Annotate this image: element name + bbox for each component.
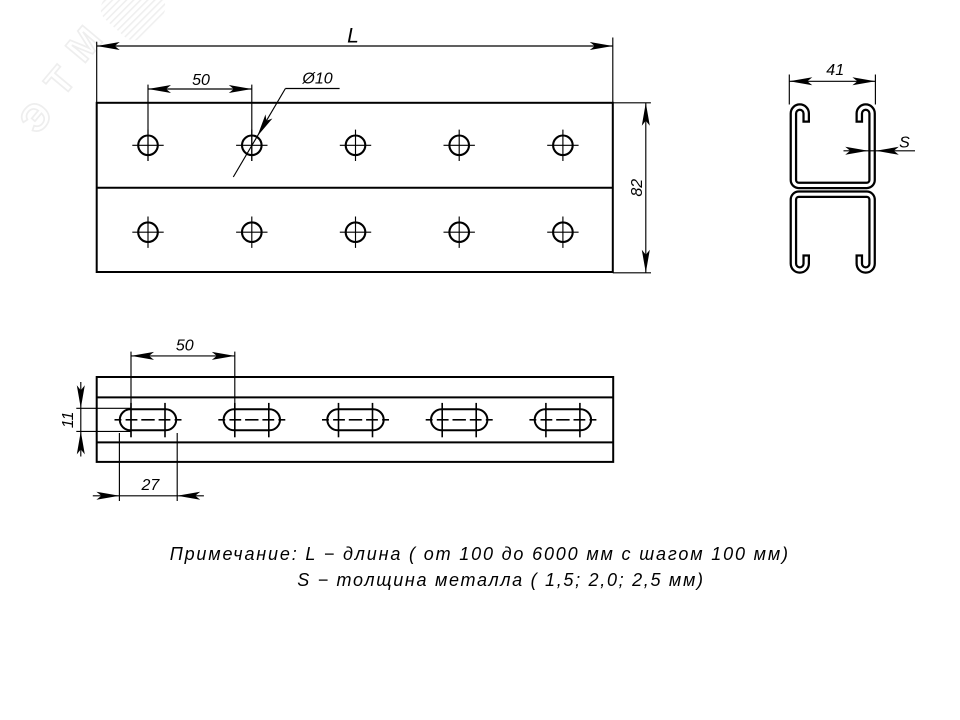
svg-text:50: 50 xyxy=(192,72,210,89)
svg-text:82: 82 xyxy=(629,179,646,197)
svg-text:11: 11 xyxy=(60,411,77,428)
svg-text:50: 50 xyxy=(176,338,194,355)
svg-text:27: 27 xyxy=(141,477,161,494)
svg-text:S: S xyxy=(899,135,910,152)
svg-text:L: L xyxy=(347,25,359,48)
svg-text:Примечание: L − длина ( от 100: Примечание: L − длина ( от 100 до 6000 м… xyxy=(170,544,788,564)
svg-text:41: 41 xyxy=(826,62,844,79)
svg-text:Т: Т xyxy=(37,59,84,104)
svg-text:М: М xyxy=(59,19,112,70)
svg-text:Ø10: Ø10 xyxy=(301,71,332,88)
svg-text:Э: Э xyxy=(12,94,62,142)
svg-text:S − толщина металла ( 1,5; 2,0: S − толщина металла ( 1,5; 2,0; 2,5 мм) xyxy=(297,570,703,590)
